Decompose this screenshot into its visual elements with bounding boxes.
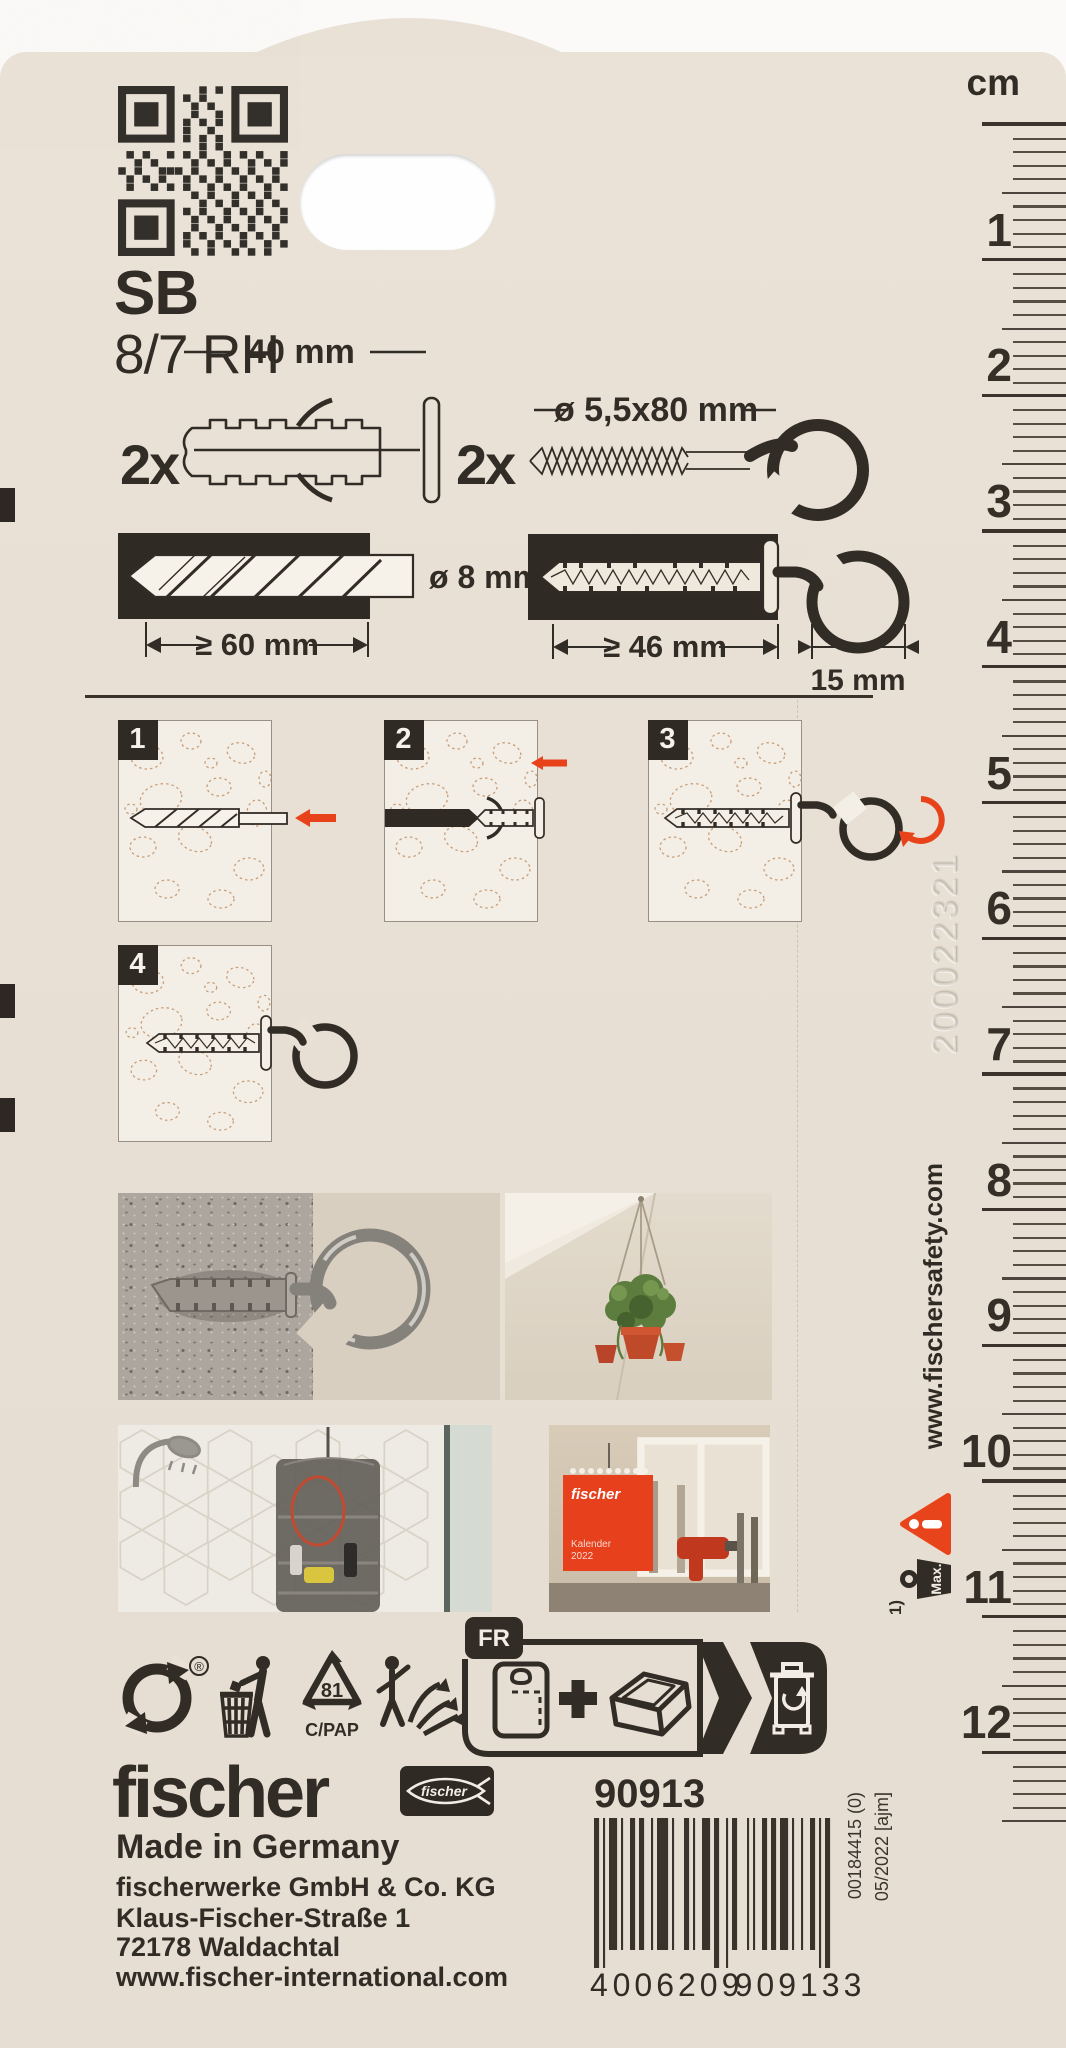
ruler-minor-tick	[1013, 1305, 1066, 1307]
ruler-minor-tick	[1013, 423, 1066, 425]
ruler-minor-tick	[1002, 870, 1066, 872]
ruler-minor-tick	[1002, 735, 1066, 737]
ruler-minor-tick	[1013, 653, 1066, 655]
company-street: Klaus-Fischer-Straße 1	[116, 1903, 410, 1934]
ruler-minor-tick	[1013, 1793, 1066, 1795]
ruler-minor-tick	[1013, 694, 1066, 696]
ruler-minor-tick	[1013, 952, 1066, 954]
packaging-card: SB 8/7 RH 2x 40 mm 2x ø 5,5x80 mm	[0, 0, 1066, 2048]
euro-hang-hole	[300, 154, 496, 250]
ruler-minor-tick	[1013, 1712, 1066, 1714]
ruler-minor-tick	[1013, 708, 1066, 710]
ruler-minor-tick	[1013, 585, 1066, 587]
ruler-minor-tick	[1013, 1115, 1066, 1117]
anchor-depth-label: ≥ 46 mm	[603, 629, 727, 664]
drill-depth-label: ≥ 60 mm	[195, 627, 319, 662]
ruler-minor-tick	[1013, 504, 1066, 506]
hang-tab-bump	[244, 14, 574, 56]
ruler-minor-tick	[1013, 1386, 1066, 1388]
ruler-minor-tick	[1013, 1576, 1066, 1578]
company-website: www.fischer-international.com	[116, 1962, 508, 1993]
ruler-minor-tick	[1002, 1549, 1066, 1551]
ruler-minor-tick	[1002, 1685, 1066, 1687]
step-3-box: 3	[648, 720, 802, 922]
ruler-number: 2	[942, 338, 1012, 392]
ruler-minor-tick	[1013, 477, 1066, 479]
qr-code	[118, 86, 288, 256]
ruler-minor-tick	[1013, 1535, 1066, 1537]
ruler-minor-tick	[1013, 1671, 1066, 1673]
ruler-minor-tick	[1013, 1264, 1066, 1266]
ruler-major-tick	[982, 258, 1066, 261]
ruler-minor-tick	[1013, 246, 1066, 248]
edge-mark	[0, 1098, 15, 1132]
ruler-minor-tick	[1002, 328, 1066, 330]
ruler-minor-tick	[1013, 341, 1066, 343]
ruler-major-tick	[982, 529, 1066, 532]
calendar-brand: fischer	[571, 1486, 621, 1503]
ruler-minor-tick	[1013, 287, 1066, 289]
ruler-minor-tick	[1013, 897, 1066, 899]
ruler-minor-tick	[1013, 640, 1066, 642]
ruler-minor-tick	[1013, 1562, 1066, 1564]
photo-hook-drawing	[118, 1193, 500, 1400]
ruler-major-tick	[982, 801, 1066, 804]
ruler-minor-tick	[1013, 1603, 1066, 1605]
article-number: 90913	[594, 1772, 705, 1817]
ruler-minor-tick	[1013, 992, 1066, 994]
triman-icon	[374, 1650, 466, 1740]
anchor-wall-drawing: ≥ 46 mm 15 mm	[525, 524, 965, 704]
ruler-minor-tick	[1013, 1318, 1066, 1320]
ruler-minor-tick	[1013, 382, 1066, 384]
ruler-minor-tick	[1013, 680, 1066, 682]
ruler-minor-tick	[1013, 911, 1066, 913]
registered-mark: ®	[194, 1659, 204, 1674]
ruler-major-tick	[982, 1072, 1066, 1075]
ruler-minor-tick	[1013, 1087, 1066, 1089]
company-name: fischerwerke GmbH & Co. KG	[116, 1872, 496, 1903]
ruler-minor-tick	[1013, 300, 1066, 302]
ruler-major-tick	[982, 937, 1066, 940]
ruler-minor-tick	[1013, 1739, 1066, 1741]
ruler-minor-tick	[1013, 1807, 1066, 1809]
ruler-minor-tick	[1013, 1060, 1066, 1062]
ruler-minor-tick	[1013, 1128, 1066, 1130]
ruler-number: 7	[942, 1017, 1012, 1071]
ruler-minor-tick	[1013, 545, 1066, 547]
fr-disposal-strip: FR	[460, 1612, 840, 1764]
ruler-minor-tick	[1013, 1400, 1066, 1402]
plug-drawing: 40 mm	[172, 330, 462, 515]
ruler-number: 5	[942, 746, 1012, 800]
ean-barcode: 4 006209 909133	[588, 1818, 868, 2003]
hook-size-label: ø 5,5x80 mm	[554, 391, 758, 429]
recycling-code: 81	[321, 1680, 343, 1702]
ruler-unit-label: cm	[940, 62, 1020, 104]
blister-card-icon	[495, 1664, 547, 1736]
ruler-minor-tick	[1002, 599, 1066, 601]
ruler-minor-tick	[1013, 626, 1066, 628]
ruler-minor-tick	[1013, 273, 1066, 275]
ruler-major-tick	[982, 1208, 1066, 1211]
calendar-title: Kalender	[571, 1539, 612, 1550]
ruler-number: 9	[942, 1288, 1012, 1342]
ruler-minor-tick	[1013, 314, 1066, 316]
ruler-minor-tick	[1013, 1427, 1066, 1429]
ruler-minor-tick	[1013, 1250, 1066, 1252]
drill-drawing: ≥ 60 mm ø 8 mm	[115, 524, 545, 674]
ruler-minor-tick	[1013, 1657, 1066, 1659]
ruler-number: 6	[942, 881, 1012, 935]
ruler-minor-tick	[1013, 558, 1066, 560]
ruler-number: 3	[942, 474, 1012, 528]
ruler-minor-tick	[1013, 1169, 1066, 1171]
tray-icon	[612, 1674, 689, 1734]
ruler-minor-tick	[1002, 1820, 1066, 1822]
ruler-minor-tick	[1013, 979, 1066, 981]
photo-hook-in-concrete	[118, 1193, 500, 1400]
ruler-minor-tick	[1013, 1440, 1066, 1442]
footnote-marker: 1)	[886, 1600, 906, 1634]
bathroom-drawing	[118, 1425, 492, 1612]
ruler-minor-tick	[1013, 1155, 1066, 1157]
ean-digit-1: 4	[590, 1967, 608, 2003]
ruler-minor-tick	[1013, 1454, 1066, 1456]
ruler-number: 1	[942, 203, 1012, 257]
ruler-minor-tick	[1013, 1630, 1066, 1632]
photo-hanging-plant	[505, 1193, 772, 1400]
ruler-minor-tick	[1013, 843, 1066, 845]
ruler-minor-tick	[1013, 1196, 1066, 1198]
ruler-minor-tick	[1013, 1101, 1066, 1103]
step-4-drawing	[119, 946, 399, 1138]
ruler-major-tick	[982, 1479, 1066, 1482]
ruler-minor-tick	[1013, 1467, 1066, 1469]
product-code: SB	[114, 258, 198, 329]
ruler-minor-tick	[1002, 192, 1066, 194]
ruler-minor-tick	[1013, 572, 1066, 574]
ruler-minor-tick	[1013, 1223, 1066, 1225]
ruler-major-tick	[982, 1615, 1066, 1618]
ruler-major-tick	[982, 1344, 1066, 1347]
ean-digits-left: 006209	[613, 1967, 744, 2003]
ruler-minor-tick	[1002, 1006, 1066, 1008]
ruler-minor-tick	[1013, 748, 1066, 750]
edge-mark	[0, 984, 15, 1018]
ruler-minor-tick	[1013, 925, 1066, 927]
ruler-minor-tick	[1013, 762, 1066, 764]
ruler-major-tick	[982, 665, 1066, 668]
made-in-label: Made in Germany	[116, 1828, 399, 1867]
warning-triangle-icon	[898, 1492, 954, 1556]
company-city: 72178 Waldachtal	[116, 1932, 340, 1963]
ruler-minor-tick	[1013, 613, 1066, 615]
photo-calendar: fischer Kalender 2022	[549, 1425, 770, 1612]
ruler-minor-tick	[1002, 1277, 1066, 1279]
ruler-minor-tick	[1013, 1766, 1066, 1768]
plug-quantity: 2x	[120, 432, 178, 497]
ruler-minor-tick	[1013, 1508, 1066, 1510]
ruler-minor-tick	[1013, 1182, 1066, 1184]
print-date-code: 05/2022 [ajm]	[872, 1792, 893, 2012]
ruler-minor-tick	[1013, 789, 1066, 791]
hook-quantity: 2x	[456, 432, 514, 497]
ruler-minor-tick	[1013, 830, 1066, 832]
hook-width-label: 15 mm	[810, 664, 905, 697]
ruler-minor-tick	[1002, 1413, 1066, 1415]
step-2-number: 2	[384, 720, 424, 760]
material-code: C/PAP	[296, 1720, 368, 1741]
green-dot-icon: ®	[117, 1652, 213, 1742]
ruler-number: 12	[942, 1695, 1012, 1749]
ruler-minor-tick	[1013, 1725, 1066, 1727]
ruler-minor-tick	[1013, 1644, 1066, 1646]
ruler-minor-tick	[1013, 1698, 1066, 1700]
ruler-minor-tick	[1013, 219, 1066, 221]
ruler-major-tick	[982, 122, 1066, 125]
step-3-number: 3	[648, 720, 688, 760]
ruler-minor-tick	[1013, 1291, 1066, 1293]
ruler-minor-tick	[1013, 138, 1066, 140]
ruler-number: 10	[942, 1424, 1012, 1478]
ruler-minor-tick	[1013, 450, 1066, 452]
ruler-minor-tick	[1013, 857, 1066, 859]
step-2-box: 2	[384, 720, 538, 922]
fischer-wordmark: fischer	[112, 1752, 327, 1834]
fr-country-label: FR	[478, 1625, 510, 1652]
ruler-minor-tick	[1002, 1142, 1066, 1144]
calendar-drawing: fischer Kalender 2022	[549, 1425, 770, 1612]
ruler-minor-tick	[1013, 409, 1066, 411]
ruler-number: 8	[942, 1153, 1012, 1207]
edge-mark	[0, 488, 15, 522]
ruler-major-tick	[982, 1751, 1066, 1754]
hook-screw-drawing: ø 5,5x80 mm	[522, 330, 922, 530]
ruler-minor-tick	[1013, 1020, 1066, 1022]
ruler-minor-tick	[1013, 1332, 1066, 1334]
print-ref-code: 00184415 (0)	[845, 1792, 866, 2012]
plant-drawing	[505, 1193, 772, 1400]
ruler-minor-tick	[1013, 1359, 1066, 1361]
ruler-minor-tick	[1013, 178, 1066, 180]
ruler-minor-tick	[1013, 1590, 1066, 1592]
section-divider	[85, 695, 873, 698]
ruler-minor-tick	[1002, 463, 1066, 465]
ruler-minor-tick	[1013, 518, 1066, 520]
recycling-code-icon: 81	[299, 1648, 365, 1718]
ruler-minor-tick	[1013, 721, 1066, 723]
ruler-minor-tick	[1013, 1495, 1066, 1497]
plug-length-label: 40 mm	[247, 333, 355, 371]
ruler-minor-tick	[1013, 965, 1066, 967]
ruler-minor-tick	[1013, 1047, 1066, 1049]
ruler-minor-tick	[1013, 1372, 1066, 1374]
ruler-minor-tick	[1013, 355, 1066, 357]
ruler-number: 11	[942, 1560, 1012, 1614]
ruler-minor-tick	[1013, 368, 1066, 370]
ruler-minor-tick	[1013, 1033, 1066, 1035]
ruler-minor-tick	[1013, 490, 1066, 492]
ruler-minor-tick	[1013, 436, 1066, 438]
tidyman-icon	[215, 1652, 285, 1742]
step-4-box: 4	[118, 945, 272, 1142]
fischer-fish-logo: fischer	[400, 1766, 494, 1816]
ruler-minor-tick	[1013, 1780, 1066, 1782]
step-4-number: 4	[118, 945, 158, 985]
ruler-minor-tick	[1013, 1237, 1066, 1239]
ruler-major-tick	[982, 394, 1066, 397]
ruler-minor-tick	[1013, 151, 1066, 153]
calendar-year: 2022	[571, 1551, 594, 1562]
ruler-minor-tick	[1013, 165, 1066, 167]
ruler-minor-tick	[1013, 1522, 1066, 1524]
step-3-drawing	[649, 721, 949, 918]
ruler-minor-tick	[1013, 233, 1066, 235]
step-1-number: 1	[118, 720, 158, 760]
ruler-minor-tick	[1013, 816, 1066, 818]
step-1-box: 1	[118, 720, 272, 922]
ruler-minor-tick	[1013, 884, 1066, 886]
plus-icon	[559, 1680, 597, 1718]
ruler-minor-tick	[1013, 205, 1066, 207]
ruler-minor-tick	[1013, 775, 1066, 777]
ruler-number: 4	[942, 610, 1012, 664]
photo-bathroom	[118, 1425, 492, 1612]
fish-logo-script: fischer	[421, 1783, 468, 1799]
